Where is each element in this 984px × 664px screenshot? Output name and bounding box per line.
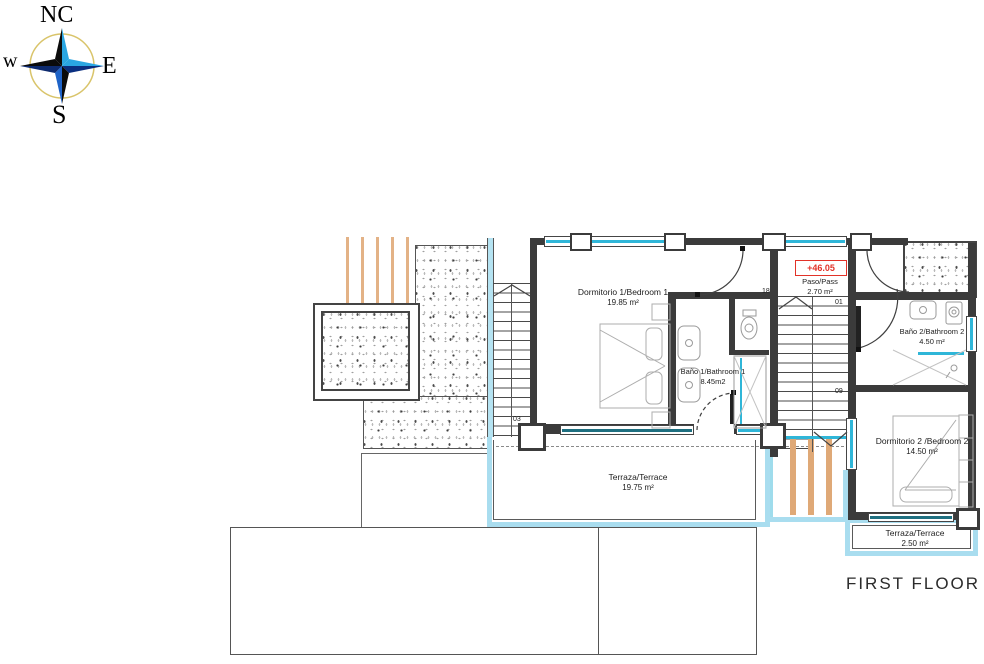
gravel-area bbox=[363, 396, 488, 449]
sliding-door bbox=[868, 513, 954, 522]
bed-icon bbox=[600, 304, 670, 428]
room-label-pass: Paso/Pass 2.70 m² bbox=[788, 277, 852, 297]
room-label-bathroom1: Baño 1/Bathroom 1 8.45m2 bbox=[666, 367, 760, 387]
ground-floor-outline bbox=[230, 527, 600, 655]
window bbox=[846, 418, 857, 470]
column bbox=[762, 233, 786, 251]
wood-beam bbox=[826, 438, 832, 515]
room-label-terrace2: Terraza/Terrace 2.50 m² bbox=[863, 528, 967, 549]
room-area: 4.50 m² bbox=[880, 337, 984, 347]
compass-north-label: NC bbox=[40, 2, 73, 29]
sink-icon bbox=[910, 301, 936, 319]
pergola-beam bbox=[376, 237, 379, 307]
shower-glass bbox=[918, 352, 964, 355]
room-name: Terraza/Terrace bbox=[578, 472, 698, 483]
ground-floor-outline bbox=[598, 527, 757, 655]
planter-box bbox=[313, 303, 420, 401]
room-area: 19.75 m² bbox=[578, 483, 698, 493]
toilet-icon bbox=[741, 310, 757, 339]
room-label-terrace1: Terraza/Terrace 19.75 m² bbox=[578, 472, 698, 493]
stairs-divider bbox=[812, 296, 813, 452]
room-area: 8.45m2 bbox=[666, 377, 760, 387]
stair-number-09: 09 bbox=[835, 388, 843, 395]
pergola-beam bbox=[391, 237, 394, 307]
stairs-centerline bbox=[511, 283, 512, 437]
lower-patio bbox=[361, 453, 490, 529]
door-hinge bbox=[740, 246, 745, 251]
room-label-bathroom2: Baño 2/Bathroom 2 4.50 m² bbox=[880, 327, 984, 347]
column bbox=[664, 233, 686, 251]
wood-beam bbox=[790, 438, 796, 515]
shower-icon bbox=[893, 350, 966, 385]
wall-segment bbox=[856, 292, 976, 300]
room-name: Terraza/Terrace bbox=[863, 528, 967, 539]
column bbox=[956, 508, 980, 530]
compass-south-label: S bbox=[52, 100, 66, 130]
wall-segment bbox=[530, 238, 537, 434]
compass-east-label: E bbox=[102, 53, 117, 80]
gravel-area bbox=[415, 245, 488, 398]
wall-segment bbox=[729, 350, 769, 355]
exterior-stairs-treads bbox=[493, 283, 531, 437]
door-arc bbox=[698, 250, 743, 295]
room-name: Paso/Pass bbox=[788, 277, 852, 287]
floor-plan-canvas: NC w E S Dormitorio 1/Bedroom 1 19.85 m²… bbox=[0, 0, 984, 664]
room-area: 2.70 m² bbox=[788, 287, 852, 297]
wall-segment bbox=[968, 243, 976, 522]
room-label-bedroom1: Dormitorio 1/Bedroom 1 19.85 m² bbox=[548, 287, 698, 308]
column bbox=[760, 423, 786, 449]
door-leaf bbox=[856, 306, 861, 350]
sliding-door bbox=[560, 425, 694, 435]
pergola-beam bbox=[406, 237, 409, 307]
terrace-border bbox=[770, 517, 848, 522]
stair-number-01: 01 bbox=[835, 299, 843, 306]
balcony-gravel bbox=[903, 241, 977, 298]
wall-segment bbox=[668, 292, 676, 432]
column bbox=[518, 423, 546, 451]
room-area: 14.50 m² bbox=[868, 447, 976, 457]
room-area: 19.85 m² bbox=[548, 298, 698, 308]
door-opening bbox=[694, 424, 734, 434]
pergola-beam bbox=[361, 237, 364, 307]
column bbox=[570, 233, 592, 251]
compass-west-label: w bbox=[3, 50, 17, 73]
wall-segment bbox=[729, 298, 735, 352]
planter-gravel bbox=[321, 311, 410, 391]
stair-number-18: 18 bbox=[762, 288, 770, 295]
room-name: Dormitorio 1/Bedroom 1 bbox=[548, 287, 698, 298]
room-area: 2.50 m² bbox=[863, 539, 967, 549]
elevation-marker: +46.05 bbox=[795, 260, 847, 276]
compass-rose-icon bbox=[20, 28, 104, 104]
wood-beam bbox=[808, 438, 814, 515]
pergola-beam bbox=[346, 237, 349, 307]
room-name: Baño 1/Bathroom 1 bbox=[666, 367, 760, 377]
stairs-flight-right bbox=[813, 296, 848, 432]
window bbox=[781, 236, 847, 247]
door-leaf bbox=[730, 394, 734, 427]
column bbox=[850, 233, 872, 251]
room-name: Baño 2/Bathroom 2 bbox=[880, 327, 984, 337]
room-name: Dormitorio 2 /Bedroom 2 bbox=[868, 436, 976, 447]
bed-icon bbox=[893, 415, 973, 507]
window bbox=[544, 236, 672, 247]
floor-title: FIRST FLOOR bbox=[838, 574, 984, 594]
wall-segment bbox=[856, 385, 976, 392]
stair-number-03: 03 bbox=[513, 416, 521, 423]
room-label-bedroom2: Dormitorio 2 /Bedroom 2 14.50 m² bbox=[868, 436, 976, 457]
sink-icon bbox=[678, 326, 700, 360]
toilet-icon bbox=[946, 302, 962, 324]
